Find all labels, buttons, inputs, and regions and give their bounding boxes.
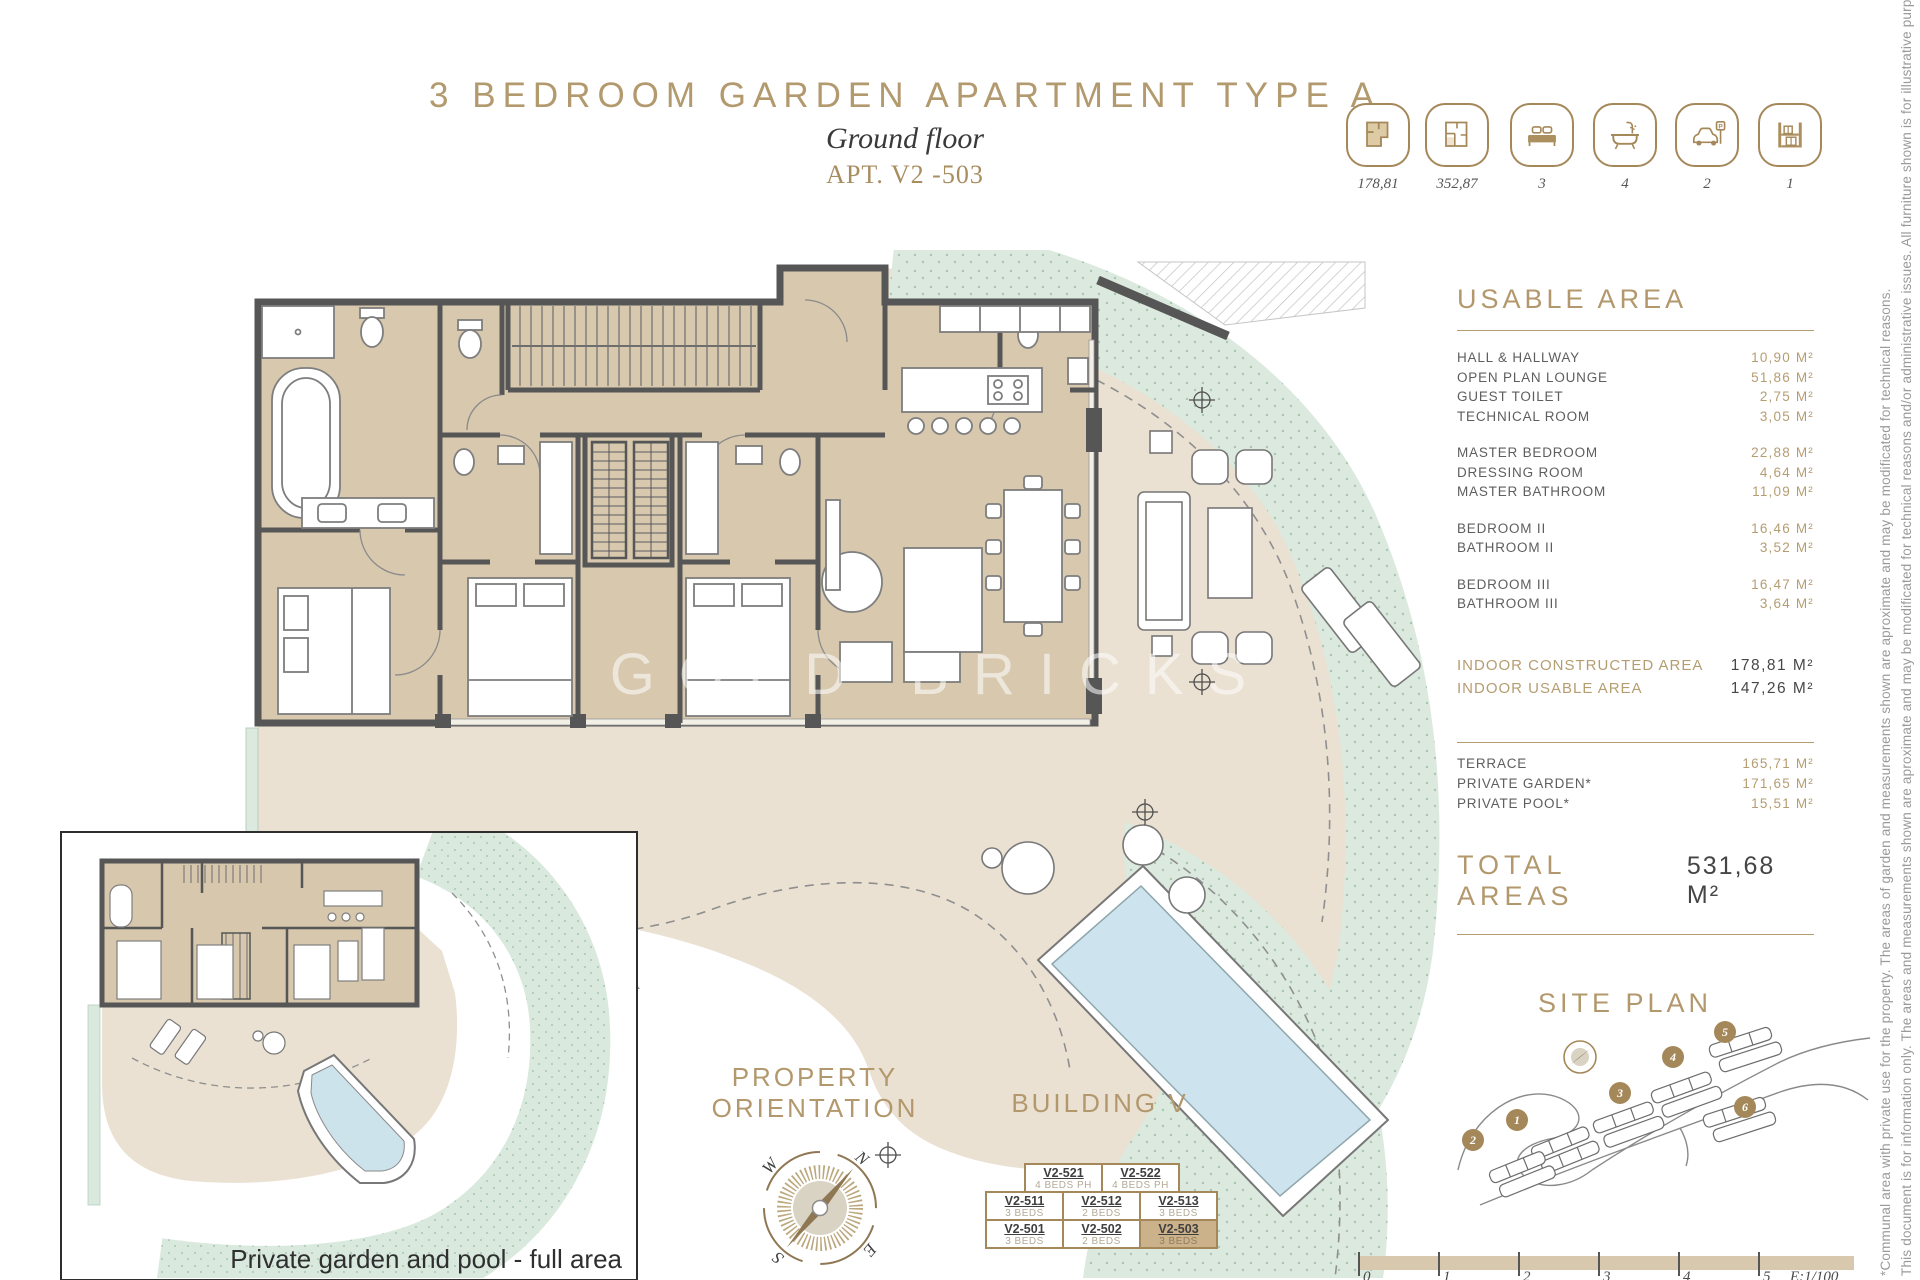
stat-indoor-area: 178,81	[1346, 103, 1410, 193]
compass-e: E	[859, 1239, 881, 1260]
area-row: OPEN PLAN LOUNGE51,86 M²	[1457, 368, 1814, 388]
area-row: BATHROOM III3,64 M²	[1457, 594, 1814, 614]
stat-value: 2	[1675, 176, 1739, 193]
divider	[1457, 330, 1814, 331]
site-compass	[1564, 1041, 1596, 1073]
dining-table	[1004, 490, 1062, 622]
building-v-table: V2-5214 BEDS PH V2-5224 BEDS PH V2-5113 …	[985, 1163, 1216, 1247]
toilet	[459, 330, 481, 358]
compass-n: N	[851, 1146, 874, 1170]
building-row: V2-5214 BEDS PH V2-5224 BEDS PH	[1024, 1163, 1216, 1191]
toilet	[780, 449, 800, 475]
stat-built-area: 352,87	[1425, 103, 1489, 193]
compass-rose: N E S W	[745, 1133, 895, 1280]
inset-full-area-plan: Private garden and pool - full area	[60, 831, 638, 1280]
glass-wall	[450, 719, 1090, 725]
area-row: PRIVATE POOL*15,51 M²	[1457, 794, 1814, 814]
property-orientation-heading: PROPERTY ORIENTATION	[700, 1062, 930, 1124]
total-areas-value: 531,68 M²	[1687, 852, 1814, 910]
basin	[1068, 358, 1088, 384]
stat-parking: P 2	[1675, 103, 1739, 193]
apartment-number: APT. V2 -503	[390, 160, 1420, 190]
building-row: V2-5013 BEDS V2-5022 BEDS V2-5033 BEDS	[985, 1219, 1216, 1247]
inset-plan-drawing	[62, 833, 635, 1278]
disclaimer-text-2: *Communal area with private use for the …	[1878, 288, 1893, 1276]
stat-value: 4	[1593, 176, 1657, 193]
svg-text:P: P	[1718, 123, 1723, 130]
scale-label: 1	[1443, 1269, 1451, 1280]
parking-icon: P	[1675, 103, 1739, 167]
stool	[908, 418, 924, 434]
area-outdoor: TERRACE165,71 M² PRIVATE GARDEN*171,65 M…	[1457, 754, 1814, 814]
divider	[1457, 742, 1814, 743]
stat-bedrooms: 3	[1510, 103, 1574, 193]
scale-label: 4	[1683, 1269, 1691, 1280]
site-plan-heading: SITE PLAN	[1460, 988, 1790, 1019]
stat-value: 3	[1510, 176, 1574, 193]
svg-text:4: 4	[1669, 1050, 1676, 1064]
disclaimer-text-1: This document is for information only. T…	[1899, 0, 1914, 1276]
area-row: DRESSING ROOM4,64 M²	[1457, 463, 1814, 483]
storage-icon	[1758, 103, 1822, 167]
floor-subtitle: Ground floor	[390, 122, 1420, 156]
scale-tick	[1438, 1252, 1440, 1276]
total-areas-label: TOTAL AREAS	[1457, 850, 1687, 912]
scale-tick	[1358, 1252, 1360, 1276]
svg-text:2: 2	[1469, 1133, 1476, 1147]
page-title: 3 BEDROOM GARDEN APARTMENT TYPE A	[390, 76, 1420, 116]
area-row: TERRACE165,71 M²	[1457, 754, 1814, 774]
stat-bathrooms: 4	[1593, 103, 1657, 193]
built-area-icon	[1425, 103, 1489, 167]
scale-tick	[1758, 1252, 1760, 1276]
sofa	[904, 548, 982, 652]
area-row: BEDROOM II16,46 M²	[1457, 519, 1814, 539]
unit-cell: V2-5122 BEDS	[1062, 1191, 1141, 1221]
area-row: BATHROOM II3,52 M²	[1457, 538, 1814, 558]
area-group-bed3: BEDROOM III16,47 M² BATHROOM III3,64 M²	[1457, 575, 1814, 614]
building-v-heading: BUILDING V	[1000, 1088, 1200, 1119]
site-plan-map: 1 2 3 4 5 6	[1450, 1020, 1880, 1255]
basin	[736, 446, 762, 464]
building-row: V2-5113 BEDS V2-5122 BEDS V2-5133 BEDS	[985, 1191, 1216, 1219]
scale-label: 0	[1363, 1269, 1371, 1280]
usable-area-heading: USABLE AREA	[1457, 284, 1814, 315]
bathrooms-icon	[1593, 103, 1657, 167]
scale-label: 2	[1523, 1269, 1531, 1280]
unit-cell: V2-5022 BEDS	[1062, 1219, 1141, 1249]
compass-w: W	[758, 1153, 783, 1177]
stat-storage: 1	[1758, 103, 1822, 193]
unit-cell: V2-5013 BEDS	[985, 1219, 1064, 1249]
divider	[1457, 934, 1814, 935]
scale-tick	[1598, 1252, 1600, 1276]
unit-cell: V2-5214 BEDS PH	[1024, 1163, 1103, 1193]
unit-cell-highlighted: V2-5033 BEDS	[1139, 1219, 1218, 1249]
area-group-master: MASTER BEDROOM22,88 M² DRESSING ROOM4,64…	[1457, 443, 1814, 502]
area-row: GUEST TOILET2,75 M²	[1457, 387, 1814, 407]
unit-cell: V2-5133 BEDS	[1139, 1191, 1218, 1221]
toilet	[361, 317, 383, 347]
basin	[498, 446, 524, 464]
area-row: BEDROOM III16,47 M²	[1457, 575, 1814, 595]
stat-value: 178,81	[1346, 176, 1410, 193]
svg-text:5: 5	[1722, 1025, 1728, 1039]
scale-label: 3	[1603, 1269, 1611, 1280]
area-row: TECHNICAL ROOM3,05 M²	[1457, 407, 1814, 427]
indoor-area-icon	[1346, 103, 1410, 167]
bedrooms-icon	[1510, 103, 1574, 167]
scale-tick	[1518, 1252, 1520, 1276]
scale-tick	[1678, 1252, 1680, 1276]
inset-caption: Private garden and pool - full area	[230, 1244, 622, 1275]
scale-ratio: E:1/100	[1790, 1269, 1838, 1280]
summary-row: INDOOR CONSTRUCTED AREA178,81 M²	[1457, 654, 1814, 677]
summary-row: INDOOR USABLE AREA147,26 M²	[1457, 677, 1814, 700]
kitchen-counter	[940, 306, 1090, 332]
svg-text:6: 6	[1742, 1100, 1748, 1114]
usable-area-panel: USABLE AREA HALL & HALLWAY10,90 M² OPEN …	[1457, 284, 1814, 935]
svg-text:GOLD BRICKS: GOLD BRICKS	[610, 642, 1270, 707]
tv-unit	[826, 500, 840, 590]
scale-bar	[1358, 1256, 1854, 1270]
stat-value: 1	[1758, 176, 1822, 193]
staircase	[512, 306, 756, 386]
stepping-stone	[1123, 825, 1163, 865]
total-areas-row: TOTAL AREAS 531,68 M²	[1457, 850, 1814, 912]
floor-plan-page: 3 BEDROOM GARDEN APARTMENT TYPE A Ground…	[0, 0, 1920, 1280]
area-row: PRIVATE GARDEN*171,65 M²	[1457, 774, 1814, 794]
area-row: MASTER BEDROOM22,88 M²	[1457, 443, 1814, 463]
unit-cell: V2-5224 BEDS PH	[1101, 1163, 1180, 1193]
hob	[988, 376, 1028, 404]
area-group-common: HALL & HALLWAY10,90 M² OPEN PLAN LOUNGE5…	[1457, 348, 1814, 426]
toilet	[454, 449, 474, 475]
shower	[540, 442, 572, 554]
area-group-bed2: BEDROOM II16,46 M² BATHROOM II3,52 M²	[1457, 519, 1814, 558]
site-markers: 1 2 3 4 5 6	[1462, 1021, 1756, 1151]
title-block: 3 BEDROOM GARDEN APARTMENT TYPE A Ground…	[390, 76, 1420, 190]
area-row: HALL & HALLWAY10,90 M²	[1457, 348, 1814, 368]
svg-text:1: 1	[1514, 1113, 1520, 1127]
shower	[686, 442, 718, 554]
svg-text:3: 3	[1616, 1086, 1623, 1100]
unit-cell: V2-5113 BEDS	[985, 1191, 1064, 1221]
stepping-stone	[1169, 877, 1205, 913]
area-row: MASTER BATHROOM11,09 M²	[1457, 482, 1814, 502]
stat-value: 352,87	[1425, 176, 1489, 193]
area-summary: INDOOR CONSTRUCTED AREA178,81 M² INDOOR …	[1457, 654, 1814, 700]
scale-label: 5	[1763, 1269, 1771, 1280]
